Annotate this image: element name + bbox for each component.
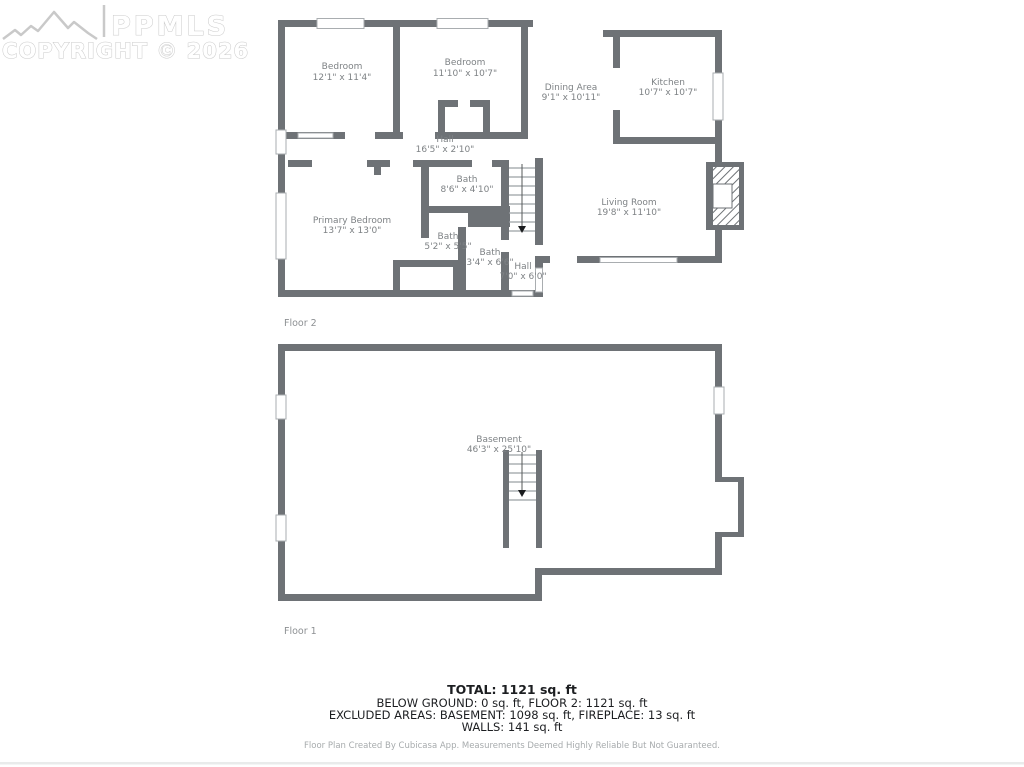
room-label: Basement [476, 435, 522, 445]
copyright-text: COPYRIGHT © 2026 [2, 39, 249, 63]
floor1-label: Floor 1 [284, 626, 317, 637]
room-label: Dining Area [545, 83, 598, 93]
room-label: Kitchen [651, 78, 685, 88]
bottom-edge-line [0, 762, 1024, 765]
stairs-down-arrow-icon [518, 226, 526, 233]
room-dims: 13'7" x 13'0" [323, 226, 382, 236]
summary-total: TOTAL: 1121 sq. ft [447, 682, 577, 697]
room-label: Bath [457, 175, 478, 185]
room-label: Living Room [601, 198, 656, 208]
summary-footer: Floor Plan Created By Cubicasa App. Meas… [304, 741, 720, 751]
fireplace [706, 162, 744, 230]
brand-text: PPMLS [111, 11, 229, 42]
floor2-label: Floor 2 [284, 318, 317, 329]
stairs-down-arrow-icon [518, 490, 526, 497]
room-dims: 12'1" x 11'4" [313, 73, 372, 83]
floor2-stairs [509, 164, 535, 233]
floor-plan-page: PPMLS COPYRIGHT © 2026 [0, 0, 1024, 767]
room-dims: 46'3" x 25'10" [467, 445, 531, 455]
floor1-stairs [509, 452, 536, 500]
room-dims: 10'7" x 10'7" [639, 88, 698, 98]
floor1-room-labels: Basement 46'3" x 25'10" [467, 435, 531, 455]
floor1-windows [276, 387, 724, 541]
room-dims: 8'6" x 4'10" [441, 185, 494, 195]
room-label: Bath [438, 232, 459, 242]
floor1-plan: Basement 46'3" x 25'10" Floor 1 [276, 344, 744, 637]
room-dims: 11'10" x 10'7" [433, 69, 497, 79]
room-label: Bath [480, 248, 501, 258]
summary-line4: WALLS: 141 sq. ft [462, 720, 563, 734]
floor-plan-canvas: PPMLS COPYRIGHT © 2026 [0, 0, 1024, 767]
room-label: Hall [514, 262, 531, 272]
room-label: Bedroom [322, 62, 363, 72]
room-dims: 9'1" x 10'11" [542, 93, 601, 103]
room-dims: 5'2" x 5'5" [424, 242, 471, 252]
room-label: Hall [436, 135, 453, 145]
firebox [713, 184, 732, 208]
room-label: Bedroom [445, 58, 486, 68]
room-label: Primary Bedroom [313, 216, 391, 226]
floor2-plan: Bedroom 12'1" x 11'4" Bedroom 11'10" x 1… [276, 19, 744, 330]
area-summary: TOTAL: 1121 sq. ft BELOW GROUND: 0 sq. f… [304, 682, 720, 751]
room-dims: 16'5" x 2'10" [416, 145, 475, 155]
mountain-logo-icon [3, 12, 97, 39]
ppmls-watermark: PPMLS COPYRIGHT © 2026 [2, 5, 249, 63]
room-dims: 3'4" x 6'6" [466, 258, 513, 268]
room-dims: 7'0" x 6'0" [499, 272, 546, 282]
room-dims: 19'8" x 11'10" [597, 208, 661, 218]
